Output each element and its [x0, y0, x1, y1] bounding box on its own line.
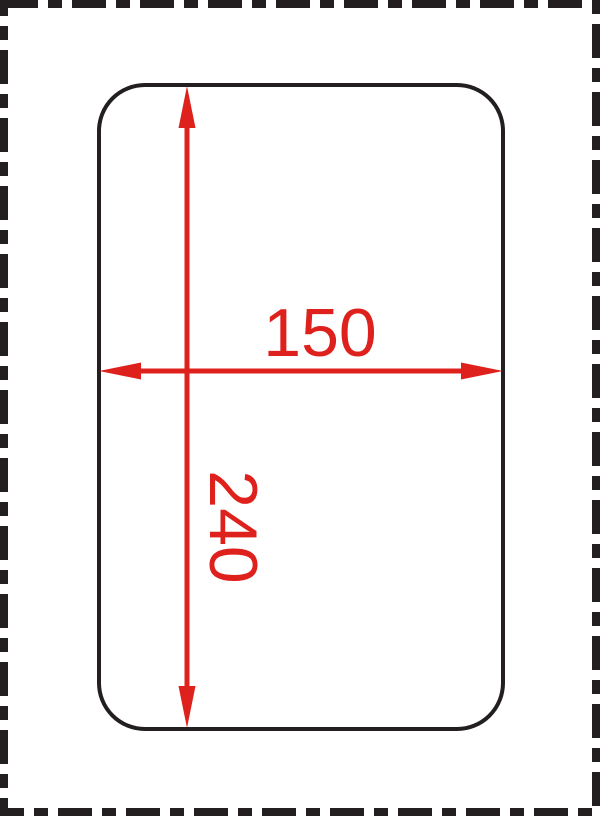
drawing-page: 240 150: [0, 0, 600, 817]
width-dimension-label: 150: [263, 295, 376, 371]
height-dimension-label: 240: [195, 470, 271, 583]
dimension-drawing: 240 150: [0, 0, 600, 817]
panel-outline: [99, 85, 503, 729]
